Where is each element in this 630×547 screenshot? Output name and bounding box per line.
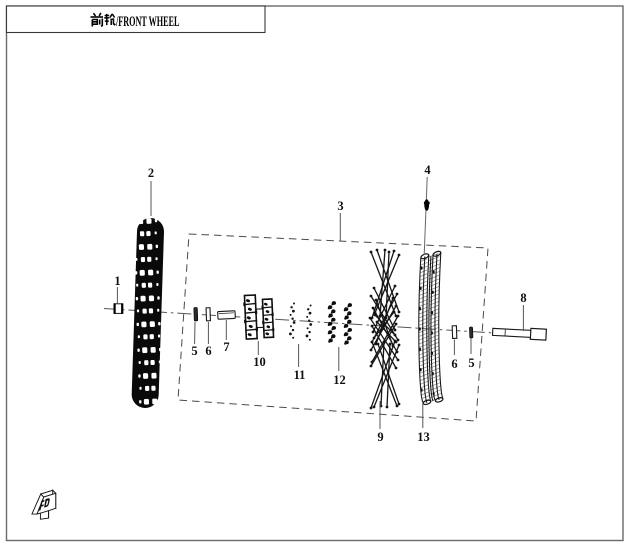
svg-text:6: 6 (205, 344, 211, 358)
svg-text:6: 6 (451, 357, 457, 371)
svg-text:5: 5 (191, 344, 197, 358)
svg-text:12: 12 (333, 373, 346, 387)
svg-text:10: 10 (253, 355, 266, 369)
svg-text:13: 13 (417, 430, 430, 444)
svg-text:/FRONT WHEEL: /FRONT WHEEL (115, 14, 179, 30)
svg-text:4: 4 (424, 163, 431, 177)
svg-text:3: 3 (337, 199, 343, 213)
svg-text:8: 8 (520, 291, 526, 305)
svg-text:11: 11 (294, 368, 306, 382)
svg-text:5: 5 (468, 356, 474, 370)
svg-text:2: 2 (148, 166, 154, 180)
svg-text:7: 7 (223, 340, 229, 354)
svg-text:1: 1 (114, 274, 120, 288)
svg-text:9: 9 (377, 430, 383, 444)
